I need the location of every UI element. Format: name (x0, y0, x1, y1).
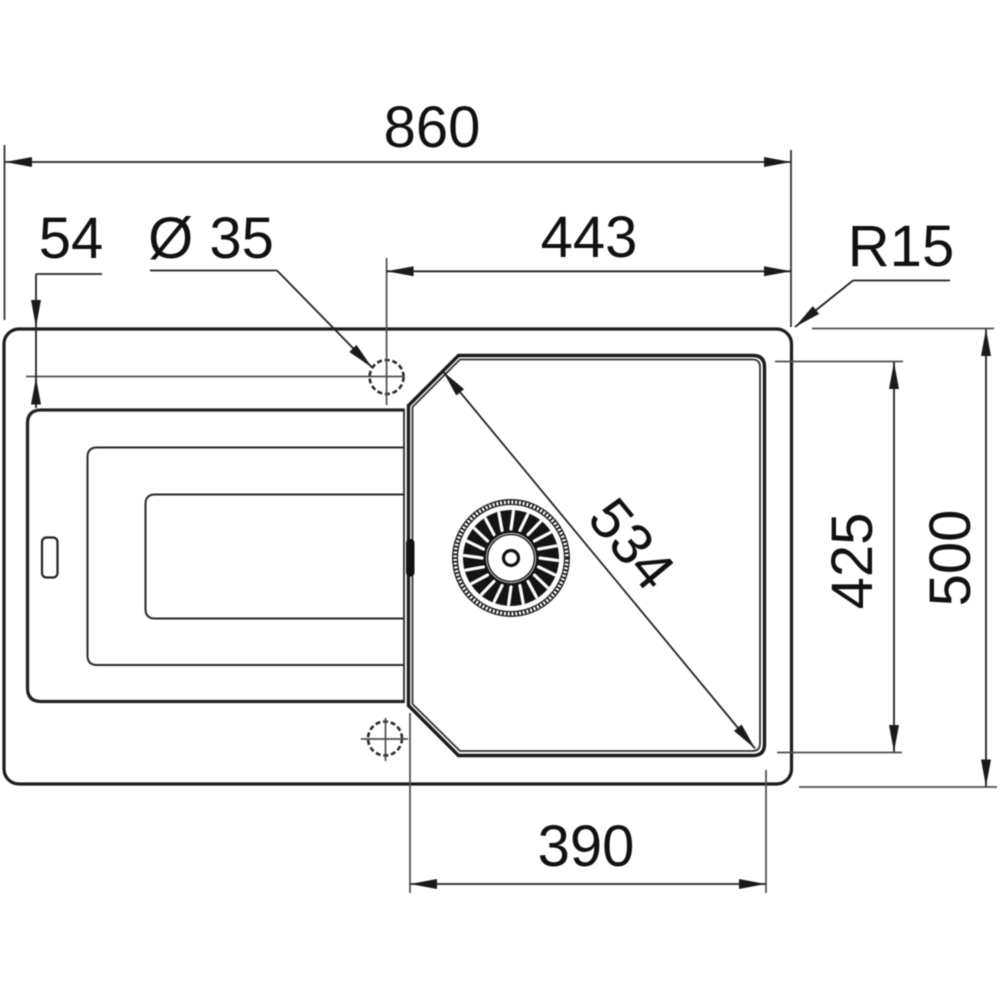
svg-text:500: 500 (918, 510, 983, 607)
svg-text:54: 54 (39, 206, 104, 271)
svg-text:425: 425 (820, 513, 885, 610)
svg-text:534: 534 (576, 486, 688, 602)
svg-text:443: 443 (541, 205, 638, 270)
svg-text:390: 390 (538, 814, 635, 879)
svg-text:R15: R15 (848, 214, 954, 279)
svg-text:860: 860 (384, 95, 481, 160)
svg-text:Ø 35: Ø 35 (148, 206, 274, 271)
